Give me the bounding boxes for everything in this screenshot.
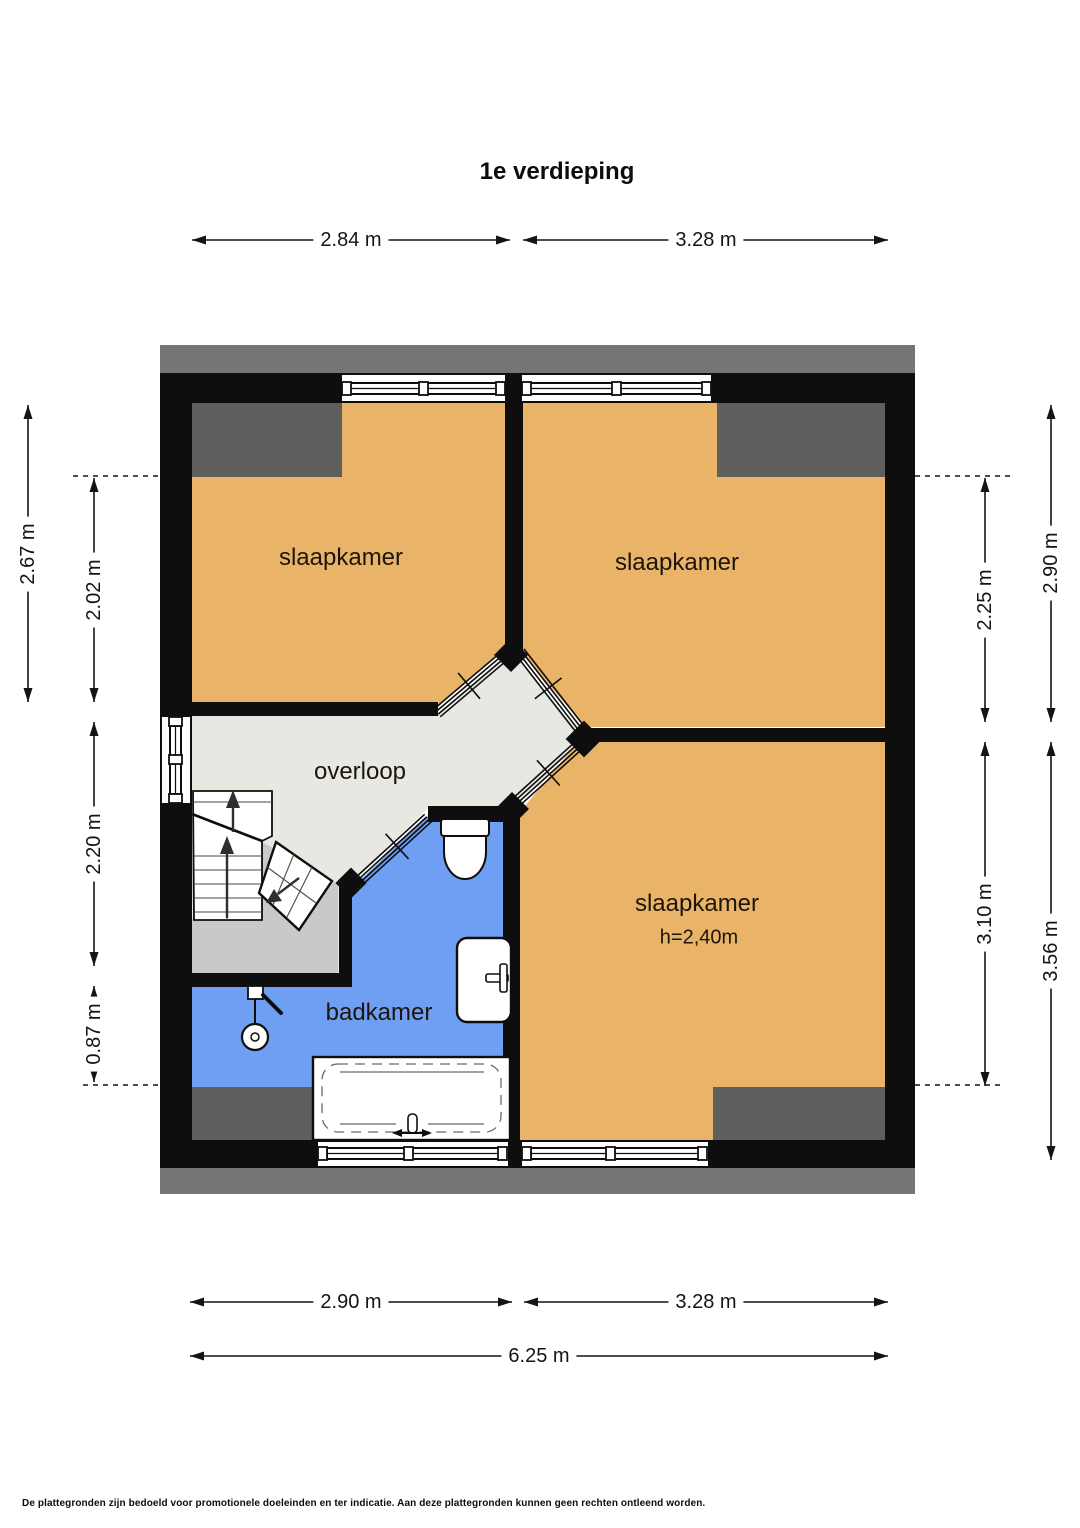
room-label-bedroom-bottom: slaapkamer xyxy=(635,892,759,916)
room-label-landing: overloop xyxy=(314,760,406,784)
window xyxy=(522,1142,708,1166)
room-fills xyxy=(192,403,885,1140)
exterior-wall-right xyxy=(885,373,915,1168)
dim-bottom-right: 3.28 m xyxy=(668,1290,743,1314)
toilet-icon xyxy=(441,819,489,879)
dim-left-outer: 2.67 m xyxy=(16,516,40,591)
roof-band-bottom xyxy=(160,1168,915,1194)
bathtub-icon xyxy=(313,1057,510,1140)
low-headroom-zone xyxy=(713,1087,885,1140)
window xyxy=(342,375,505,401)
dim-top-left: 2.84 m xyxy=(313,228,388,252)
room-label-bedroom-top-right: slaapkamer xyxy=(615,551,739,575)
dim-right-outer-bottom: 3.56 m xyxy=(1039,913,1063,988)
dim-top-right: 3.28 m xyxy=(668,228,743,252)
page-title: 1e verdieping xyxy=(480,158,635,186)
interior-wall-center xyxy=(505,373,523,655)
sink-icon xyxy=(457,938,511,1022)
dim-right-inner-top: 2.25 m xyxy=(973,562,997,637)
window xyxy=(162,717,190,803)
window xyxy=(522,375,711,401)
floorplan-drawing xyxy=(0,0,1080,1528)
room-height-note: h=2,40m xyxy=(660,927,738,950)
dim-left-inner-bottom: 0.87 m xyxy=(82,996,106,1071)
interior-wall-bedroom1-south xyxy=(160,702,438,716)
low-headroom-zone xyxy=(192,1087,313,1140)
disclaimer-text: De plattegronden zijn bedoeld voor promo… xyxy=(22,1498,705,1509)
interior-wall-bathroom-west xyxy=(339,883,352,987)
dim-left-inner-middle: 2.20 m xyxy=(82,806,106,881)
interior-wall-bedrooms-divider xyxy=(580,728,885,742)
floorplan-page: 1e verdieping 2.84 m 3.28 m 2.67 m 2.02 … xyxy=(0,0,1080,1528)
roof-band-top xyxy=(160,345,915,373)
interior-wall-landing-south xyxy=(160,973,352,987)
low-headroom-zone xyxy=(717,403,885,477)
window xyxy=(318,1142,508,1166)
dim-right-outer-top: 2.90 m xyxy=(1039,525,1063,600)
low-headroom-zone xyxy=(192,403,342,477)
dim-left-inner-top: 2.02 m xyxy=(82,552,106,627)
room-label-bathroom: badkamer xyxy=(326,1001,433,1025)
room-label-bedroom-top-left: slaapkamer xyxy=(279,546,403,570)
dim-bottom-left: 2.90 m xyxy=(313,1290,388,1314)
dim-right-inner-bottom: 3.10 m xyxy=(973,876,997,951)
dim-bottom-total: 6.25 m xyxy=(501,1344,576,1368)
